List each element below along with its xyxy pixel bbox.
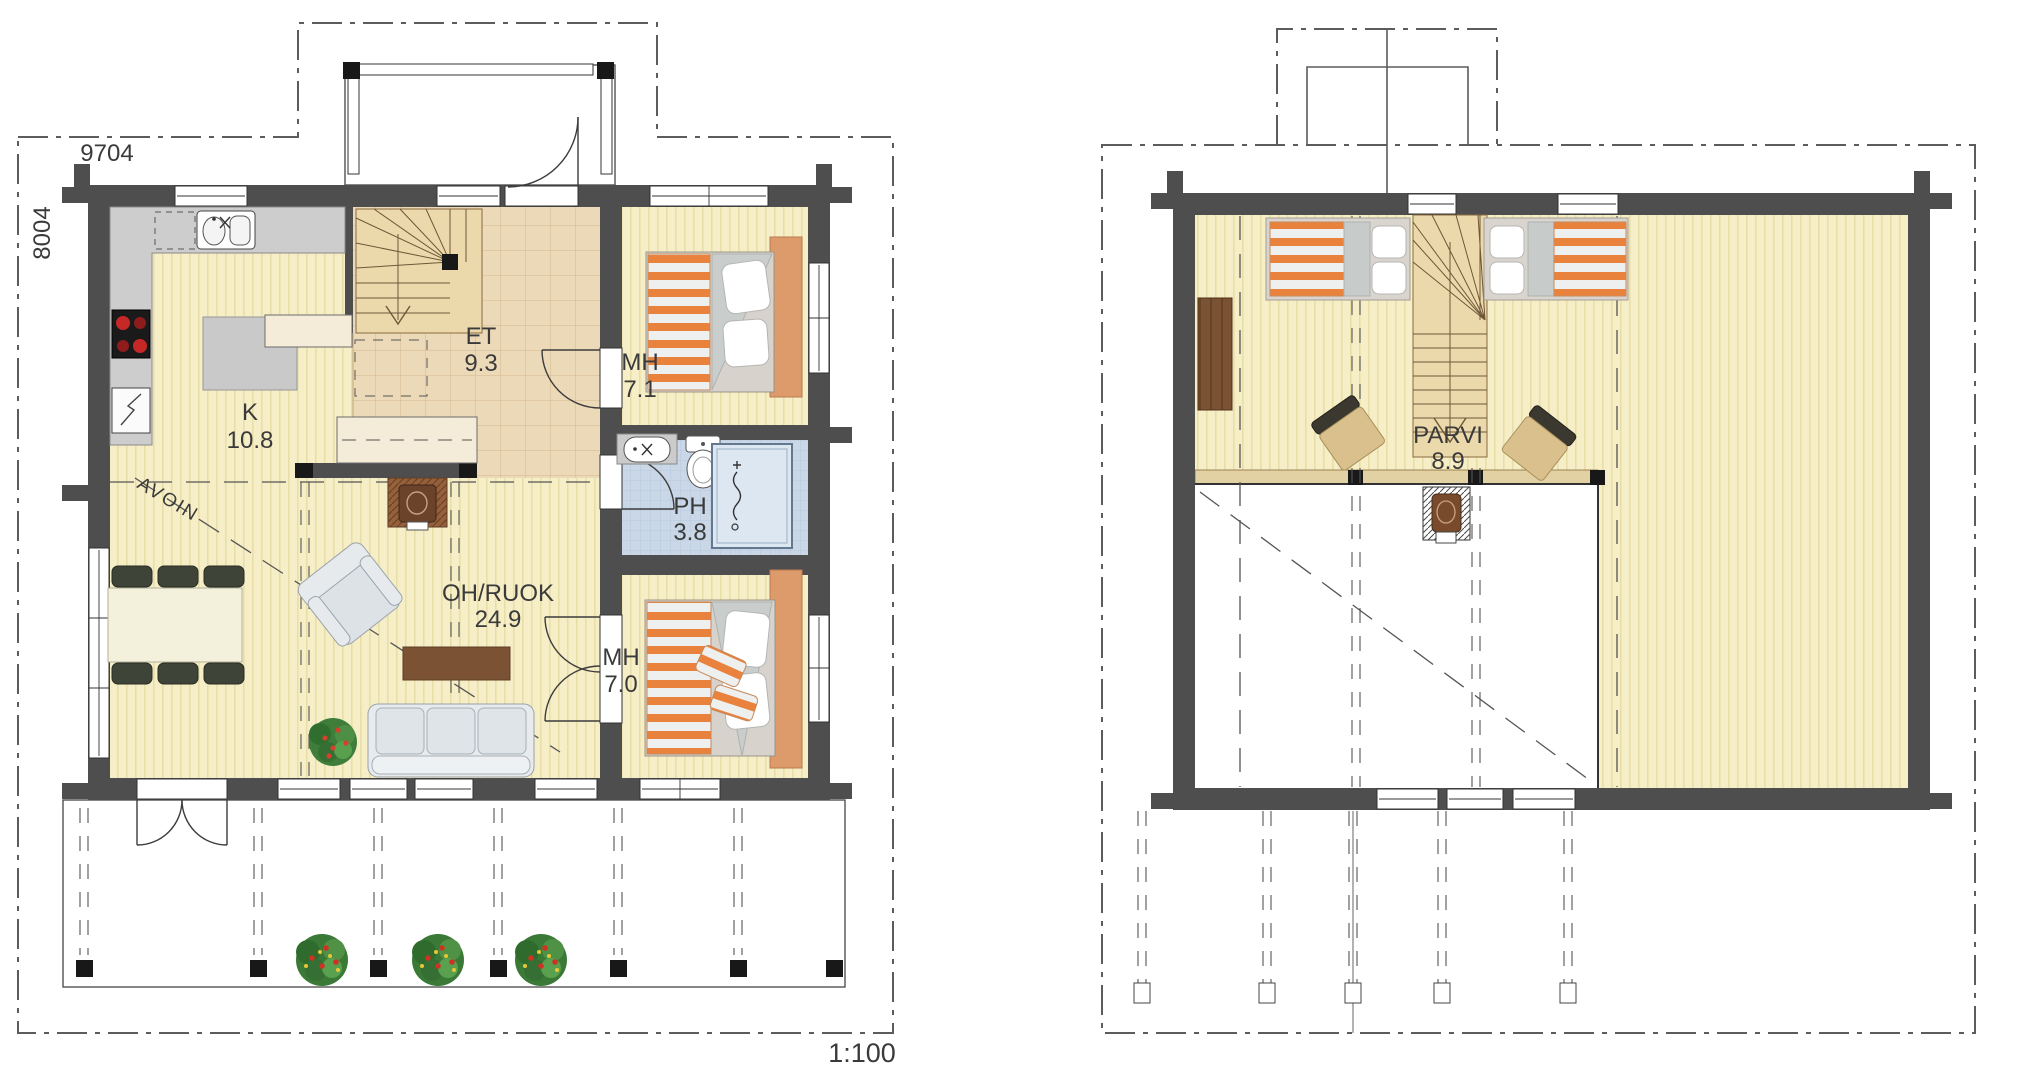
room-area-kitchen: 10.8	[227, 427, 274, 454]
flower-bush-icon	[296, 934, 348, 986]
window	[809, 263, 829, 373]
bathroom-sink-icon	[624, 437, 670, 462]
room-area-bedroom-top: 7.1	[623, 376, 656, 403]
bed-icon	[1266, 218, 1410, 300]
dresser	[1198, 298, 1232, 410]
window	[809, 615, 829, 722]
chimney-icon	[1423, 487, 1470, 543]
room-area-bathroom: 3.8	[673, 519, 706, 546]
window	[437, 186, 500, 206]
window	[350, 779, 407, 799]
ground-floor-plan: 9704 8004	[18, 23, 896, 1068]
porch-railing	[601, 78, 612, 174]
floorplan-canvas: 9704 8004	[0, 0, 2024, 1087]
dining-table	[108, 588, 242, 662]
window	[175, 186, 247, 206]
porch-railing	[359, 64, 593, 75]
room-label-living: OH/RUOK	[442, 580, 554, 607]
room-area-loft: 8.9	[1431, 448, 1464, 475]
room-label-entry: ET	[466, 323, 497, 350]
shower-icon	[712, 444, 792, 548]
room-label-loft: PARVI	[1413, 422, 1483, 449]
loft-post	[1348, 470, 1363, 485]
terrace-post-lines	[80, 808, 742, 955]
loft-floor-areas	[1195, 215, 1908, 788]
porch-railing	[348, 78, 359, 174]
dimension-width: 9704	[80, 140, 133, 167]
window	[640, 779, 720, 799]
window	[89, 548, 109, 758]
stair-newel-post	[442, 254, 458, 270]
terrace-french-doors	[137, 779, 227, 845]
window	[1447, 789, 1503, 809]
window	[1513, 789, 1575, 809]
fridge-icon	[112, 388, 150, 433]
window	[535, 779, 597, 799]
entry-door	[505, 117, 578, 206]
room-label-bathroom: PH	[673, 493, 706, 520]
window	[1558, 194, 1618, 214]
room-area-living: 24.9	[475, 606, 522, 633]
fireplace-icon	[388, 478, 447, 530]
loft-post	[1590, 470, 1605, 485]
floorplan-sheet: 9704 8004	[0, 0, 2024, 1087]
terrace	[63, 800, 845, 987]
room-label-kitchen: K	[242, 399, 258, 426]
window	[415, 779, 473, 799]
scale-label: 1:100	[828, 1038, 896, 1068]
window	[278, 779, 340, 799]
flower-bush-icon	[412, 934, 464, 986]
staircase-upper	[1413, 215, 1487, 457]
understair-cabinet	[265, 315, 352, 347]
flower-bush-icon	[515, 934, 567, 986]
porch-post	[597, 62, 614, 79]
dining-set	[108, 566, 244, 684]
plant-icon	[309, 718, 357, 766]
bed-icon	[646, 237, 802, 397]
dimension-height: 8004	[29, 206, 56, 259]
post-projection-lines	[1134, 811, 1576, 1033]
bed-icon	[645, 570, 802, 768]
window	[1377, 789, 1438, 809]
porch-post	[343, 62, 360, 79]
window	[1408, 194, 1456, 214]
kitchen-sink-icon	[197, 211, 255, 249]
room-label-bedroom-top: MH	[621, 349, 658, 376]
entrance-porch	[343, 62, 615, 185]
room-label-bedroom-bottom: MH	[602, 644, 639, 671]
room-area-bedroom-bottom: 7.0	[604, 671, 637, 698]
room-area-entry: 9.3	[464, 350, 497, 377]
loft-post	[1468, 470, 1483, 485]
stove-icon	[112, 310, 150, 358]
entry-bench	[337, 417, 477, 463]
upper-floor-plan: PARVI 8.9	[1102, 29, 1975, 1033]
coffee-table	[403, 647, 510, 680]
window	[650, 186, 768, 206]
sofa-icon	[368, 704, 534, 777]
bed-icon	[1484, 218, 1628, 300]
